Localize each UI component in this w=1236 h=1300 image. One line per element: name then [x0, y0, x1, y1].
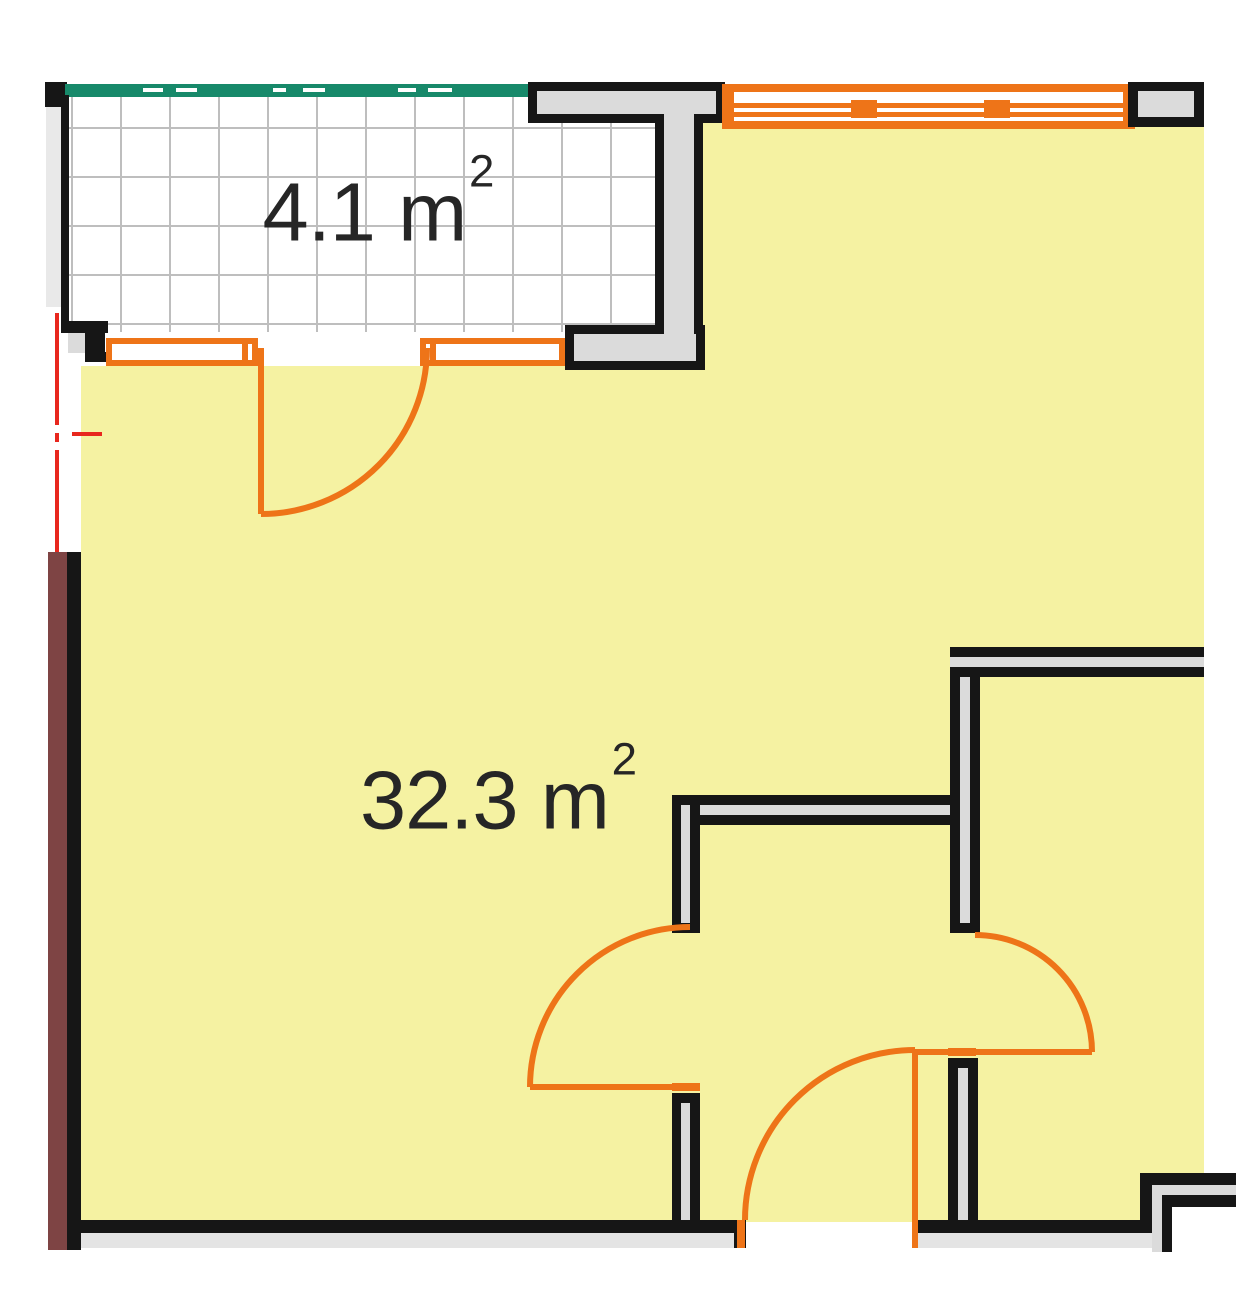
partition-v-lower-core	[958, 1068, 968, 1220]
partition-v-upper-edge-l	[950, 647, 960, 933]
section-line-tick	[72, 432, 102, 436]
railing-dash-5	[398, 88, 416, 92]
railing-dash-2	[176, 88, 197, 92]
stub-upper-edge-r	[690, 795, 700, 933]
balcony-window-left-top-rail	[106, 338, 258, 344]
balcony-window-left-cap-l	[106, 338, 112, 366]
top-window-top-rail	[722, 84, 1135, 92]
balcony-left-wall-line	[61, 95, 69, 333]
top-window-mid-rail-a	[722, 103, 1135, 108]
balcony-railing	[65, 84, 528, 97]
shaft-wall-fill-v	[1152, 1185, 1162, 1252]
balcony-window-right-cap-r	[559, 338, 565, 366]
shaft-inner-wall-v	[1162, 1195, 1172, 1252]
balcony-area-sup: 2	[469, 146, 493, 197]
balcony-area-label: 4.1 m2	[263, 171, 494, 254]
partition-h-right-core	[950, 657, 1204, 667]
stub-upper-edge-l	[672, 795, 681, 933]
bottom-door-strike-tick	[737, 1220, 745, 1248]
pier-step-fill	[574, 334, 696, 361]
section-line-dash-1	[55, 313, 59, 425]
bottom-wall-right	[918, 1220, 1148, 1233]
shaft-outer-wall-v	[1140, 1173, 1152, 1233]
room-area-value: 32.3	[360, 759, 518, 842]
partition-v-upper-edge-r	[970, 647, 980, 933]
partition-h-right-edge-b	[950, 667, 1204, 677]
shaft-outer-wall-h	[1140, 1173, 1236, 1185]
partition-v-upper-core	[960, 647, 970, 923]
balcony-area-unit: m2	[398, 171, 493, 254]
balcony-step-top	[63, 321, 108, 333]
partition-h-right-edge-t	[950, 647, 1204, 657]
top-window-mullion-1	[851, 100, 877, 118]
section-wall-edge	[67, 552, 81, 1250]
shaft-interior	[1172, 1207, 1236, 1255]
railing-dash-3	[273, 88, 286, 92]
top-window-mid-rail-b	[722, 112, 1135, 117]
balcony-window-left-bottom-rail	[106, 360, 258, 366]
railing-dash-4	[303, 88, 325, 92]
bottom-apron-right	[918, 1233, 1157, 1248]
room-area-label: 32.3 m2	[360, 759, 636, 842]
top-window-cap-l	[722, 84, 734, 129]
stub-lower-edge-r	[690, 1093, 700, 1220]
bottom-wall-left	[81, 1220, 734, 1233]
partition-v-lower-edge-r	[968, 1058, 978, 1220]
railing-dash-1	[143, 88, 163, 92]
balcony-area-value: 4.1	[263, 171, 375, 254]
balcony-step-pocket	[68, 333, 85, 353]
stub-lower-edge-l	[672, 1093, 681, 1220]
balcony-window-right-bottom-rail	[420, 360, 565, 366]
room-area-sup: 2	[612, 734, 636, 785]
partition-v-upper-cap	[950, 923, 980, 933]
pier-stem-fill	[664, 91, 694, 361]
stub-upper-core	[681, 805, 691, 923]
balcony-window-right-top-rail	[420, 338, 565, 344]
section-wall-maroon	[48, 552, 67, 1250]
floor-plan	[0, 0, 1236, 1300]
balcony-window-left-cap-r	[252, 338, 258, 366]
balcony-window-right-divider	[430, 338, 436, 366]
railing-dash-6	[428, 88, 452, 92]
left-facade-strip	[46, 107, 61, 307]
top-right-wall-fill	[1138, 91, 1194, 117]
section-line-dash-2	[55, 450, 59, 552]
partition-h-center-edge-b	[672, 815, 950, 825]
bottom-apron-left	[81, 1233, 734, 1248]
shaft-inner-wall-h	[1162, 1195, 1236, 1207]
partition-v-lower-edge-l	[948, 1058, 958, 1220]
partition-h-center-core	[680, 805, 950, 815]
floor-plan-page: 4.1 m2 32.3 m2	[0, 0, 1236, 1300]
partition-h-center-edge-t	[672, 795, 950, 805]
section-line-dot	[55, 433, 59, 442]
room-area-unit: m2	[541, 759, 636, 842]
top-window-mullion-2	[984, 100, 1010, 118]
shaft-wall-fill-h	[1152, 1185, 1236, 1195]
top-window-bottom-rail	[722, 121, 1135, 129]
stub-lower-core	[681, 1103, 691, 1220]
balcony-window-left-divider	[242, 338, 248, 366]
